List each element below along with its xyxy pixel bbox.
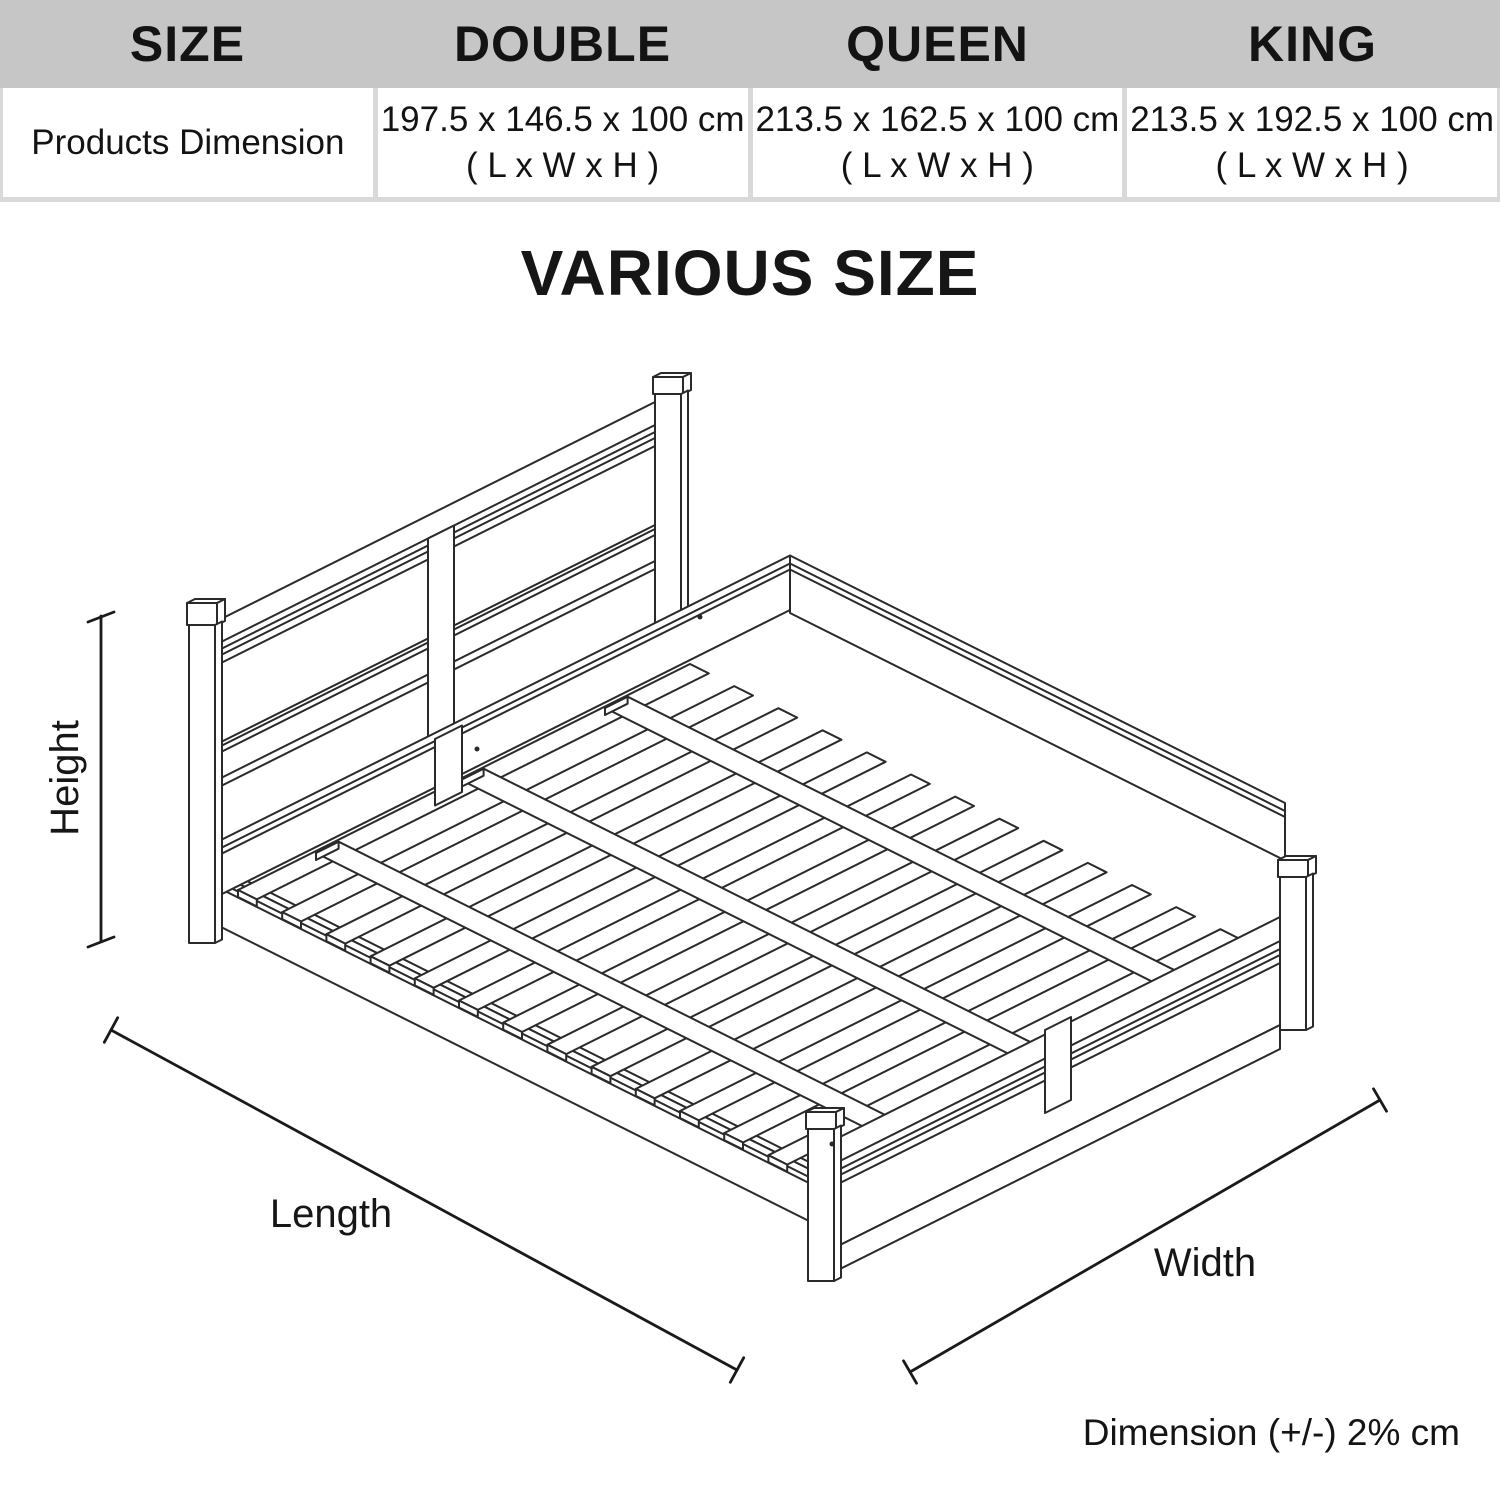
height-label: Height [43,720,87,836]
bed-diagram: Height Length Width [0,0,1500,1500]
tolerance-note: Dimension (+/-) 2% cm [960,1412,1460,1454]
product-dimension-sheet: SIZE DOUBLE QUEEN KING Products Dimensio… [0,0,1500,1500]
length-label: Length [270,1192,392,1236]
center-leg [435,726,462,806]
footboard-center-divider [1045,1017,1071,1113]
width-label: Width [1154,1241,1256,1285]
headboard-near-post [187,599,225,943]
